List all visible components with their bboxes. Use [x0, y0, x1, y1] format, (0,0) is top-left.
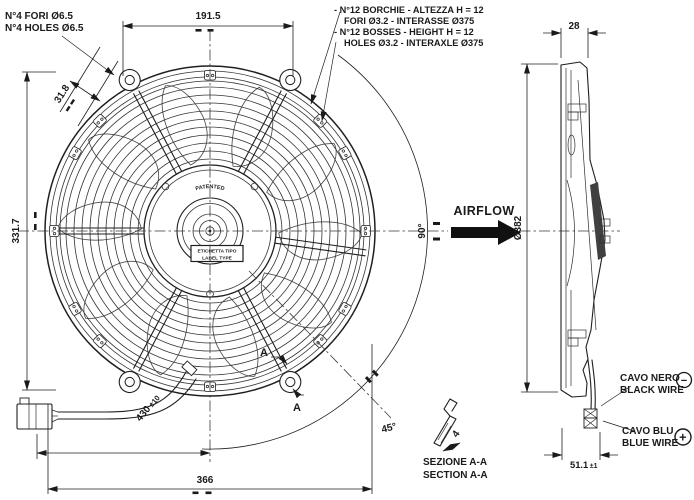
- dim-wire-length: 430±10: [37, 393, 210, 459]
- blue-wire-line1: CAVO BLU: [622, 426, 673, 437]
- note-holes-line2: N°4 HOLES Ø6.5: [5, 23, 84, 34]
- dim-hole-offset: 31.8: [53, 47, 118, 126]
- note-bosses-line1: - N°12 BORCHIE - ALTEZZA H = 12: [334, 5, 484, 15]
- black-wire-line1: CAVO NERO: [620, 373, 680, 384]
- section-marker-a-bottom: A: [293, 402, 301, 414]
- airflow-label: AIRFLOW: [453, 204, 514, 218]
- mounting-tab: [276, 66, 304, 94]
- type-label-box: ETICHETTA TIPO LABEL TYPE: [191, 246, 243, 262]
- dim-depth-28: 28: [543, 21, 606, 58]
- fan-front-view: PATENTED ETICHETTA TIPO LABEL TYPE: [17, 66, 375, 429]
- blue-wire-line2: BLUE WIRE: [622, 438, 678, 449]
- dim-331-label: 331.7: [11, 218, 22, 243]
- black-wire-line2: BLACK WIRE: [620, 385, 684, 396]
- dim-28-label: 28: [568, 21, 580, 32]
- angle-90-label: 90°: [417, 223, 428, 238]
- dim-191-label: 191.5: [195, 11, 220, 22]
- label-box-line2: LABEL TYPE: [202, 255, 233, 261]
- mounting-tab: [116, 66, 144, 94]
- fan-side-view: [561, 62, 610, 428]
- side-connector: [584, 409, 597, 428]
- angle-45-label: 45°: [380, 421, 397, 435]
- wire-label-black: CAVO NERO BLACK WIRE −: [601, 373, 692, 407]
- technical-drawing-fan: PATENTED ETICHETTA TIPO LABEL TYPE: [0, 0, 694, 500]
- note-bosses-line3: - N°12 BOSSES - HEIGHT H = 12: [334, 27, 474, 37]
- mounting-tab: [116, 368, 144, 396]
- dim-31-label: 31.8: [53, 83, 73, 106]
- dim-total-depth: 51.1±1: [544, 428, 618, 470]
- minus-sign: −: [681, 375, 687, 387]
- note-bosses-line4: HOLES Ø3.2 - INTERAXLE Ø375: [344, 38, 483, 48]
- note-bosses: - N°12 BORCHIE - ALTEZZA H = 12 FORI Ø3.…: [334, 5, 484, 48]
- dim-4-label: 4: [450, 428, 462, 439]
- dim-430-label: 430±10: [134, 393, 162, 424]
- dim-51-label: 51.1±1: [570, 459, 598, 470]
- 45deg-axis-line: [249, 271, 391, 418]
- dim-366-label: 366: [197, 475, 214, 486]
- connector-plug: [17, 398, 58, 429]
- brand-logo-mark: [568, 135, 575, 155]
- airflow-arrow-icon: [451, 220, 521, 245]
- dim-diameter-382: Ø382: [513, 64, 558, 392]
- note-holes-line1: N°4 FORI Ø6.5: [5, 11, 73, 22]
- section-title-line1: SEZIONE A-A: [423, 457, 487, 468]
- airflow-annotation: AIRFLOW: [451, 204, 521, 245]
- section-marker-a-top: A: [260, 347, 268, 359]
- drawing-canvas: PATENTED ETICHETTA TIPO LABEL TYPE: [0, 0, 694, 500]
- dim-382-label: Ø382: [513, 215, 524, 240]
- wire-and-connector: [17, 361, 197, 429]
- section-title-line2: SECTION A-A: [423, 470, 488, 481]
- mounting-tab: [276, 368, 304, 396]
- plus-sign: +: [679, 431, 687, 445]
- wire-label-blue: CAVO BLU BLUE WIRE +: [603, 421, 691, 449]
- note-holes: N°4 FORI Ø6.5 N°4 HOLES Ø6.5: [5, 11, 84, 34]
- note-bosses-line2: FORI Ø3.2 - INTERASSE Ø375: [344, 16, 474, 26]
- label-box-line1: ETICHETTA TIPO: [198, 248, 237, 254]
- section-detail: 4 SEZIONE A-A SECTION A-A: [423, 399, 488, 481]
- centerlines: [18, 30, 620, 462]
